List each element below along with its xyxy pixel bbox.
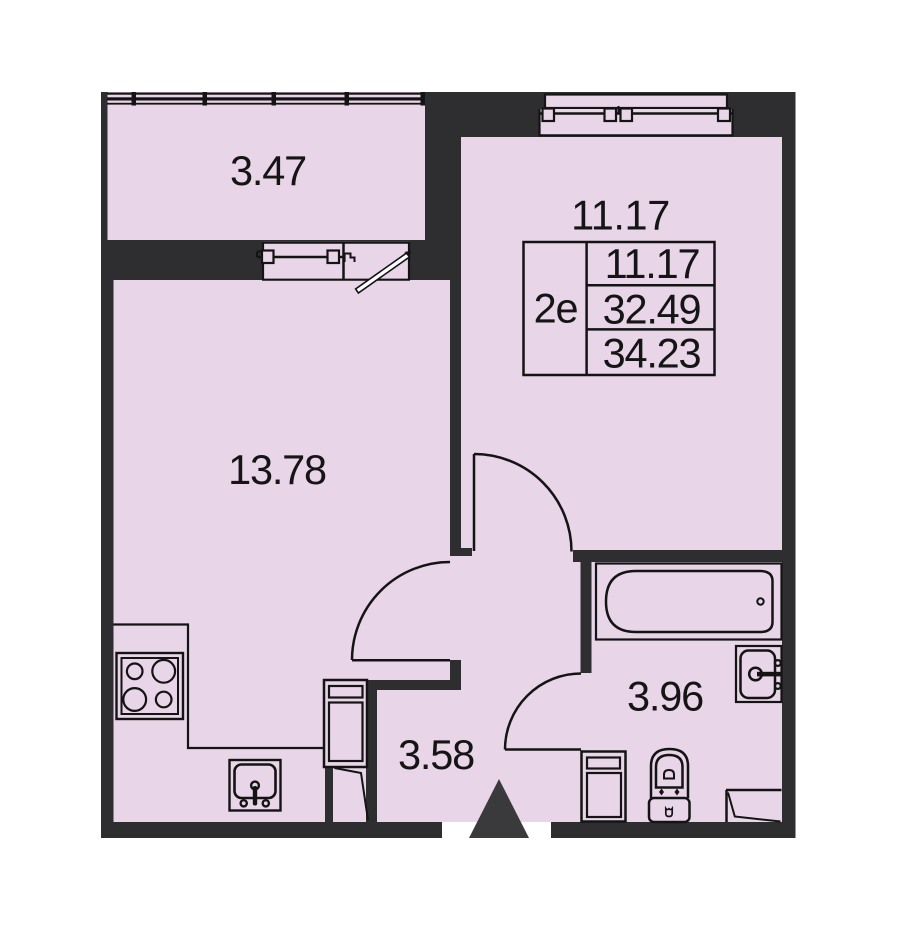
- svg-text:3.47: 3.47: [230, 147, 306, 194]
- svg-text:32.49: 32.49: [603, 286, 701, 333]
- svg-text:3.58: 3.58: [398, 731, 474, 778]
- svg-text:13.78: 13.78: [228, 446, 326, 493]
- svg-text:3.96: 3.96: [627, 673, 703, 720]
- svg-text:2e: 2e: [534, 285, 578, 332]
- svg-text:11.17: 11.17: [605, 240, 700, 287]
- svg-text:11.17: 11.17: [571, 192, 670, 239]
- svg-text:34.23: 34.23: [603, 330, 701, 377]
